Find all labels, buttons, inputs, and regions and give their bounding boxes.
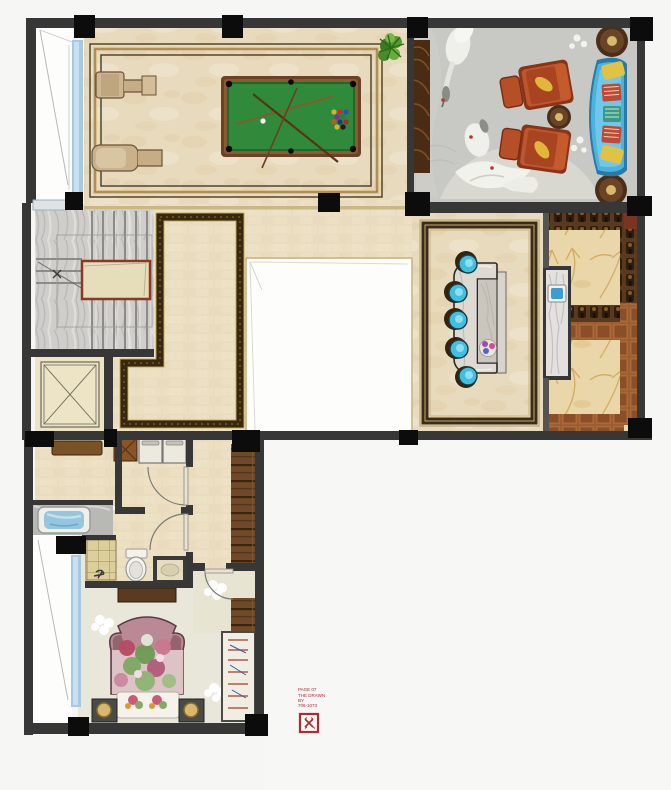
svg-text:706-1073: 706-1073 [298,703,318,708]
svg-text:PAGE 07: PAGE 07 [298,687,317,692]
